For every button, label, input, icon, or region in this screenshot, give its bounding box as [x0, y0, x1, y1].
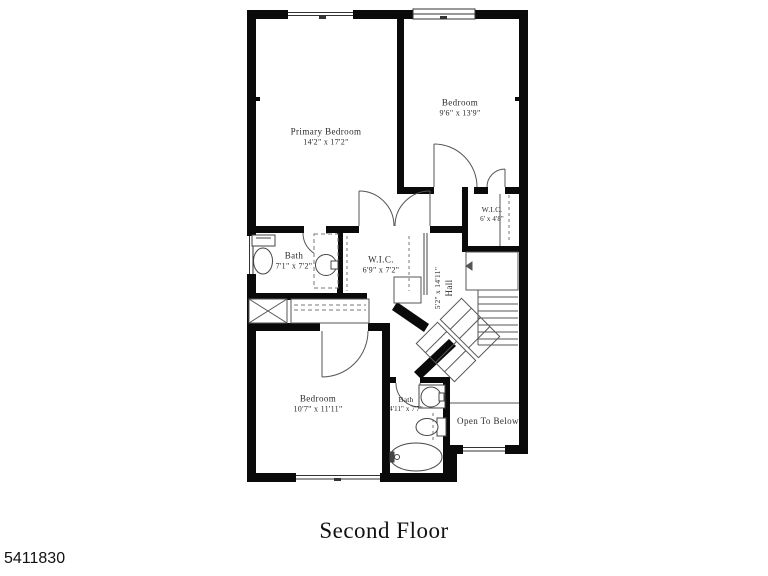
room-label-bedroom-bottom: Bedroom 10'7" x 11'11" — [293, 393, 342, 416]
hall-cabinet — [394, 277, 421, 303]
room-label-open-to-below: Open To Below — [457, 415, 519, 427]
stair-direction-marker — [466, 262, 472, 270]
room-label-primary-bedroom: Primary Bedroom 14'2" x 17'2" — [291, 126, 362, 149]
door-arc-bedroom-top — [434, 144, 477, 187]
toilet-icon — [252, 235, 275, 274]
room-name: Bedroom — [439, 97, 480, 109]
room-name: Bedroom — [293, 393, 342, 405]
room-dimensions: 6' x 4'8" — [480, 215, 504, 224]
room-dimensions: 6'9" x 7'2" — [363, 266, 400, 277]
room-dimensions: 5'2" x 14'11" — [433, 267, 443, 309]
window-open-below — [463, 445, 505, 454]
room-name: Bath — [276, 250, 313, 262]
room-dimensions: 14'2" x 17'2" — [291, 138, 362, 149]
room-label-bedroom-top: Bedroom 9'6" x 13'9" — [439, 97, 480, 120]
room-dimensions: 9'6" x 13'9" — [439, 109, 480, 120]
room-dimensions: 4'11" x 7'7" — [389, 405, 423, 414]
room-label-bath-bottom: Bath 4'11" x 7'7" — [389, 395, 423, 415]
door-arc-bedroom-bottom — [322, 331, 368, 377]
floor-title: Second Floor — [319, 518, 448, 544]
room-dimensions: 7'1" x 7'2" — [276, 262, 313, 273]
hall-partition — [424, 233, 427, 295]
window-top-primary — [288, 10, 353, 19]
listing-number: 5411830 — [4, 550, 65, 568]
room-label-hall: 5'2" x 14'11" Hall — [433, 267, 455, 309]
closet-shelf-x — [249, 299, 287, 323]
room-name: W.I.C. — [363, 254, 400, 266]
stair-landing — [466, 252, 518, 290]
toilet-icon — [416, 413, 446, 440]
floorplan-drawing — [0, 0, 768, 576]
room-name: W.I.C. — [480, 205, 504, 215]
room-dimensions: 10'7" x 11'11" — [293, 405, 342, 416]
door-arc-primary-left — [359, 191, 394, 226]
interior-walls — [247, 10, 528, 481]
window-top-bedroom — [413, 9, 475, 19]
room-label-wic-right: W.I.C. 6' x 4'8" — [480, 205, 504, 225]
sink-icon — [314, 234, 338, 288]
room-name: Primary Bedroom — [291, 126, 362, 138]
door-arc-primary-right — [395, 191, 430, 226]
room-name: Hall — [443, 267, 455, 309]
window-bottom-bedroom — [296, 473, 380, 482]
room-label-wic-mid: W.I.C. 6'9" x 7'2" — [363, 254, 400, 277]
room-label-bath-top: Bath 7'1" x 7'2" — [276, 250, 313, 273]
room-name: Bath — [389, 395, 423, 405]
floorplan-page: Primary Bedroom 14'2" x 17'2" Bedroom 9'… — [0, 0, 768, 576]
room-name: Open To Below — [457, 415, 519, 427]
closet-rod — [291, 299, 369, 323]
door-arc-wic-right — [487, 169, 505, 187]
bathtub-icon — [390, 443, 442, 471]
